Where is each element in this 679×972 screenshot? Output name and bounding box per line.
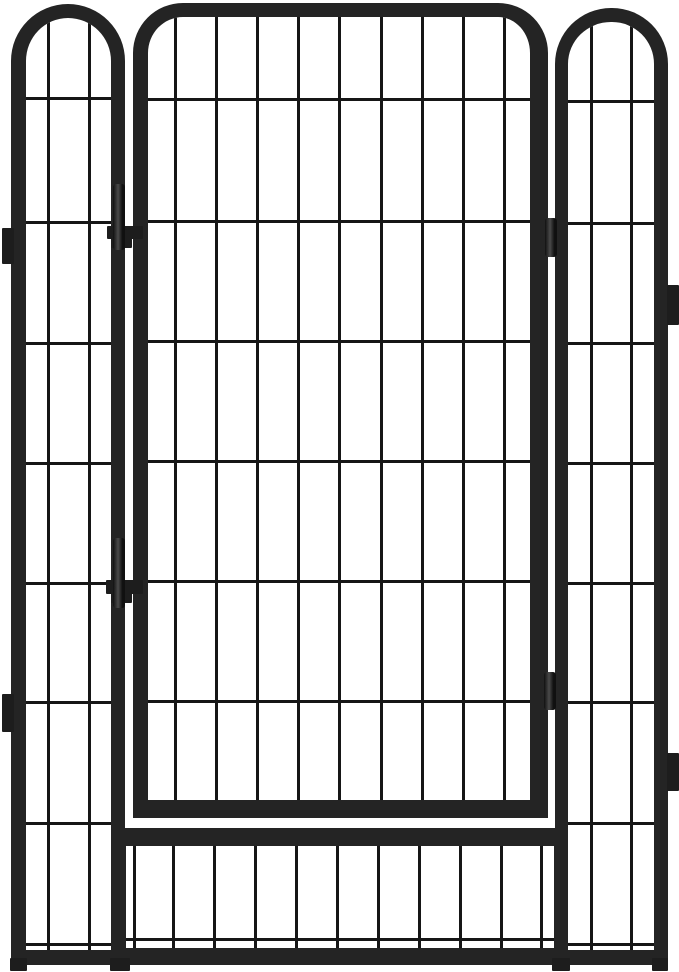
wire-horizontal xyxy=(568,100,654,103)
wire-vertical xyxy=(540,846,543,948)
wire-vertical xyxy=(47,18,50,950)
mount-tab-right-upper xyxy=(667,285,679,325)
foot-right-outer xyxy=(652,958,668,971)
door-panel xyxy=(133,3,548,818)
wire-vertical xyxy=(88,18,91,950)
foot-left-outer xyxy=(10,958,27,971)
hinge-pin-upper xyxy=(113,184,125,250)
wire-vertical xyxy=(297,17,300,800)
wire-vertical xyxy=(336,846,339,948)
wire-vertical xyxy=(213,846,216,948)
hinge-pin-lower xyxy=(113,538,125,608)
wire-horizontal xyxy=(568,342,654,345)
mount-tab-right-lower xyxy=(667,753,679,791)
wire-vertical xyxy=(295,846,298,948)
wire-vertical xyxy=(418,846,421,948)
wire-horizontal xyxy=(148,580,530,583)
wire-horizontal xyxy=(568,943,654,946)
wire-vertical xyxy=(338,17,341,800)
foot-left-inner xyxy=(110,958,130,971)
wire-vertical xyxy=(421,17,424,800)
playpen-product-photo xyxy=(0,0,679,972)
foot-right-inner xyxy=(552,958,570,971)
wire-vertical xyxy=(380,17,383,800)
connector-right-lower xyxy=(544,672,556,710)
wire-horizontal xyxy=(148,98,530,101)
wire-vertical xyxy=(459,846,462,948)
wire-horizontal xyxy=(26,582,111,585)
wire-vertical xyxy=(590,22,593,950)
wire-horizontal xyxy=(26,221,111,224)
wire-vertical xyxy=(462,17,465,800)
wire-horizontal xyxy=(26,97,111,100)
wire-horizontal xyxy=(568,822,654,825)
right-side-panel xyxy=(555,8,668,965)
wire-horizontal xyxy=(568,222,654,225)
left-side-panel xyxy=(11,4,125,965)
wire-horizontal xyxy=(568,701,654,704)
wire-vertical xyxy=(215,17,218,800)
wire-horizontal xyxy=(148,700,530,703)
wire-vertical xyxy=(174,17,177,800)
bottom-grid-section xyxy=(113,828,568,965)
wire-vertical xyxy=(503,17,506,800)
connector-right-upper xyxy=(545,218,557,257)
wire-vertical xyxy=(500,846,503,948)
wire-vertical xyxy=(630,22,633,950)
mount-tab-left-lower xyxy=(2,694,14,732)
wire-vertical xyxy=(256,17,259,800)
wire-horizontal xyxy=(568,462,654,465)
wire-vertical xyxy=(254,846,257,948)
wire-horizontal xyxy=(26,943,111,946)
wire-horizontal xyxy=(148,220,530,223)
wire-vertical xyxy=(172,846,175,948)
wire-vertical xyxy=(133,846,136,948)
mount-tab-left-upper xyxy=(2,228,14,264)
wire-horizontal xyxy=(148,460,530,463)
wire-horizontal xyxy=(126,938,554,941)
wire-horizontal xyxy=(26,701,111,704)
wire-horizontal xyxy=(26,462,111,465)
wire-vertical xyxy=(377,846,380,948)
wire-horizontal xyxy=(26,342,111,345)
wire-horizontal xyxy=(148,340,530,343)
wire-horizontal xyxy=(26,822,111,825)
wire-horizontal xyxy=(568,582,654,585)
